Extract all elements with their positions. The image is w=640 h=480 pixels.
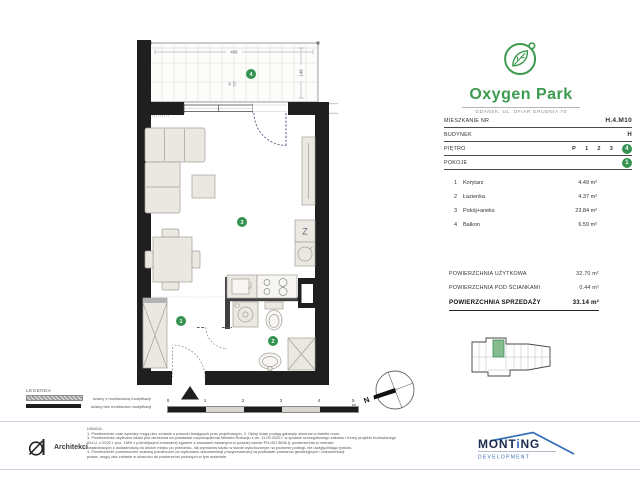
value: 0.44 m² (579, 285, 599, 291)
svg-text:406: 406 (230, 50, 238, 55)
badge-room: 3 (240, 220, 243, 226)
room-area: 4.37 m² (578, 194, 597, 200)
label: MIESZKANIE NR (444, 118, 489, 124)
scale-tick: 1 (204, 398, 207, 403)
floor-plan: 406 148 30 230 (93, 3, 338, 403)
legend-item: ściany bez możliwości modyfikacji (26, 404, 176, 409)
summary-row-walls: POWIERZCHNIA POD ŚCIANKAMI 0.44 m² (449, 281, 599, 295)
svg-text:230: 230 (233, 81, 237, 87)
apartment-number: H.4.M10 (605, 117, 632, 124)
room-name: Łazienka (463, 194, 578, 200)
wardrobe (302, 137, 315, 205)
floor-option: P (572, 146, 576, 152)
room-area: 4.49 m² (578, 180, 597, 186)
badge-corridor: 1 (179, 319, 182, 325)
label: POWIERZCHNIA POD ŚCIANKAMI (449, 285, 540, 291)
svg-text:30: 30 (228, 82, 232, 86)
area-summary: POWIERZCHNIA UŻYTKOWA 32.70 m² POWIERZCH… (449, 267, 599, 311)
north-needle (374, 388, 397, 400)
stove (257, 275, 297, 298)
balcony-door-arc (254, 113, 286, 146)
developer-logo: MONTiNG DEVELOPMENT (477, 431, 577, 463)
room-list: 1 Korytarz 4.49 m² 2 Łazienka 4.37 m² 3 … (449, 176, 597, 232)
badge-bath: 2 (271, 339, 274, 345)
building-key-plan (466, 332, 552, 384)
dining-table (145, 229, 200, 290)
room-row: 3 Pokój+aneks 23.84 m² (449, 204, 597, 218)
value: 32.70 m² (576, 271, 599, 277)
fixed-wall-swatch (26, 404, 81, 408)
svg-text:Z: Z (302, 227, 308, 237)
leaf-logo-icon (501, 38, 541, 80)
sofa (145, 128, 205, 213)
shaft (298, 278, 318, 308)
summary-row-sale: POWIERZCHNIA SPRZEDAŻY 33.14 m² (449, 295, 599, 311)
room-name: Korytarz (463, 180, 578, 186)
svg-text:148: 148 (298, 69, 303, 77)
developer-name: MONTiNG (478, 437, 540, 451)
highlighted-unit (493, 340, 504, 357)
scale-bar: 0 1 2 3 4 5 M (167, 398, 358, 414)
balcony-door (253, 104, 287, 147)
doors (173, 328, 228, 378)
brand-logo: Oxygen Park GDAŃSK, UL. OFIAR GRUDNIA 70 (431, 38, 611, 115)
scale-tick: 4 (318, 398, 321, 403)
label: POKOJE (444, 160, 467, 166)
coffee-table (192, 175, 215, 198)
row-building: BUDYNEK H (444, 128, 632, 142)
developer-subtitle: DEVELOPMENT (478, 455, 530, 461)
bottom-divider-line (0, 469, 640, 470)
disclaimer-notes: UWAGA: 1. Powierzchnie oraz wymiary mogą… (87, 427, 443, 460)
room-area: 6.59 m² (578, 222, 597, 228)
scale-tick: 0 (167, 398, 170, 403)
row-rooms: POKOJE 1 (444, 156, 632, 170)
floor-option: 3 (610, 146, 613, 152)
room-name: Pokój+aneks (463, 208, 575, 214)
shower (288, 338, 315, 370)
room-area: 23.84 m² (575, 208, 597, 214)
furniture: Z (143, 128, 318, 371)
label: POWIERZCHNIA UŻYTKOWA (449, 271, 527, 277)
label: POWIERZCHNIA SPRZEDAŻY (449, 299, 541, 306)
unit-info-table: MIESZKANIE NR H.4.M10 BUDYNEK H PIĘTRO P… (444, 114, 632, 170)
toilet (265, 302, 283, 330)
room-row: 1 Korytarz 4.49 m² (449, 176, 597, 190)
brand-name: Oxygen Park (431, 86, 611, 104)
washing-machine (233, 302, 258, 327)
summary-row-usable: POWIERZCHNIA UŻYTKOWA 32.70 m² (449, 267, 599, 281)
north-label: N (363, 395, 371, 405)
room-no: 3 (449, 208, 457, 214)
kitchen-sink-unit (227, 275, 257, 298)
divider-line (0, 421, 640, 422)
floor-selected-badge: 4 (622, 144, 632, 154)
bathroom-door-arc (206, 328, 227, 349)
legend-title: LEGENDA (26, 388, 176, 393)
label: PIĘTRO (444, 146, 466, 152)
legend: LEGENDA ściany z możliwością modyfikacji… (26, 388, 176, 411)
room-row: 4 Balkon 6.59 m² (449, 218, 597, 232)
hall-wardrobe (143, 298, 167, 368)
kitchen-appliance (295, 242, 315, 266)
room-no: 2 (449, 194, 457, 200)
rooms-count-badge: 1 (622, 158, 632, 168)
floor-options: P 1 2 3 4 (572, 144, 632, 154)
room-row: 2 Łazienka 4.37 m² (449, 190, 597, 204)
value: 33.14 m² (573, 299, 599, 306)
legend-item: ściany z możliwością modyfikacji (26, 395, 176, 401)
modifiable-wall-swatch (26, 395, 83, 401)
scale-bar-segments (167, 406, 359, 413)
building-value: H (627, 132, 632, 138)
room-no: 1 (449, 180, 457, 186)
room-no: 4 (449, 222, 457, 228)
room-name: Balkon (463, 222, 578, 228)
window (184, 104, 253, 114)
row-apartment-number: MIESZKANIE NR H.4.M10 (444, 114, 632, 128)
floor-option: 1 (585, 146, 588, 152)
entrance-door-arc (173, 345, 206, 378)
architect-logo: Architekci (28, 437, 88, 457)
scale-tick: 3 (280, 398, 283, 403)
compass: N (363, 361, 423, 421)
washbasin (259, 353, 281, 371)
row-floor: PIĘTRO P 1 2 3 4 (444, 142, 632, 156)
architect-glyph-icon (28, 437, 48, 457)
scale-tick: 2 (242, 398, 245, 403)
neighbor-wall-stub (329, 104, 338, 113)
floor-option: 2 (597, 146, 600, 152)
fridge: Z (295, 220, 315, 242)
balcony: 406 148 30 230 (149, 42, 320, 103)
label: BUDYNEK (444, 132, 472, 138)
